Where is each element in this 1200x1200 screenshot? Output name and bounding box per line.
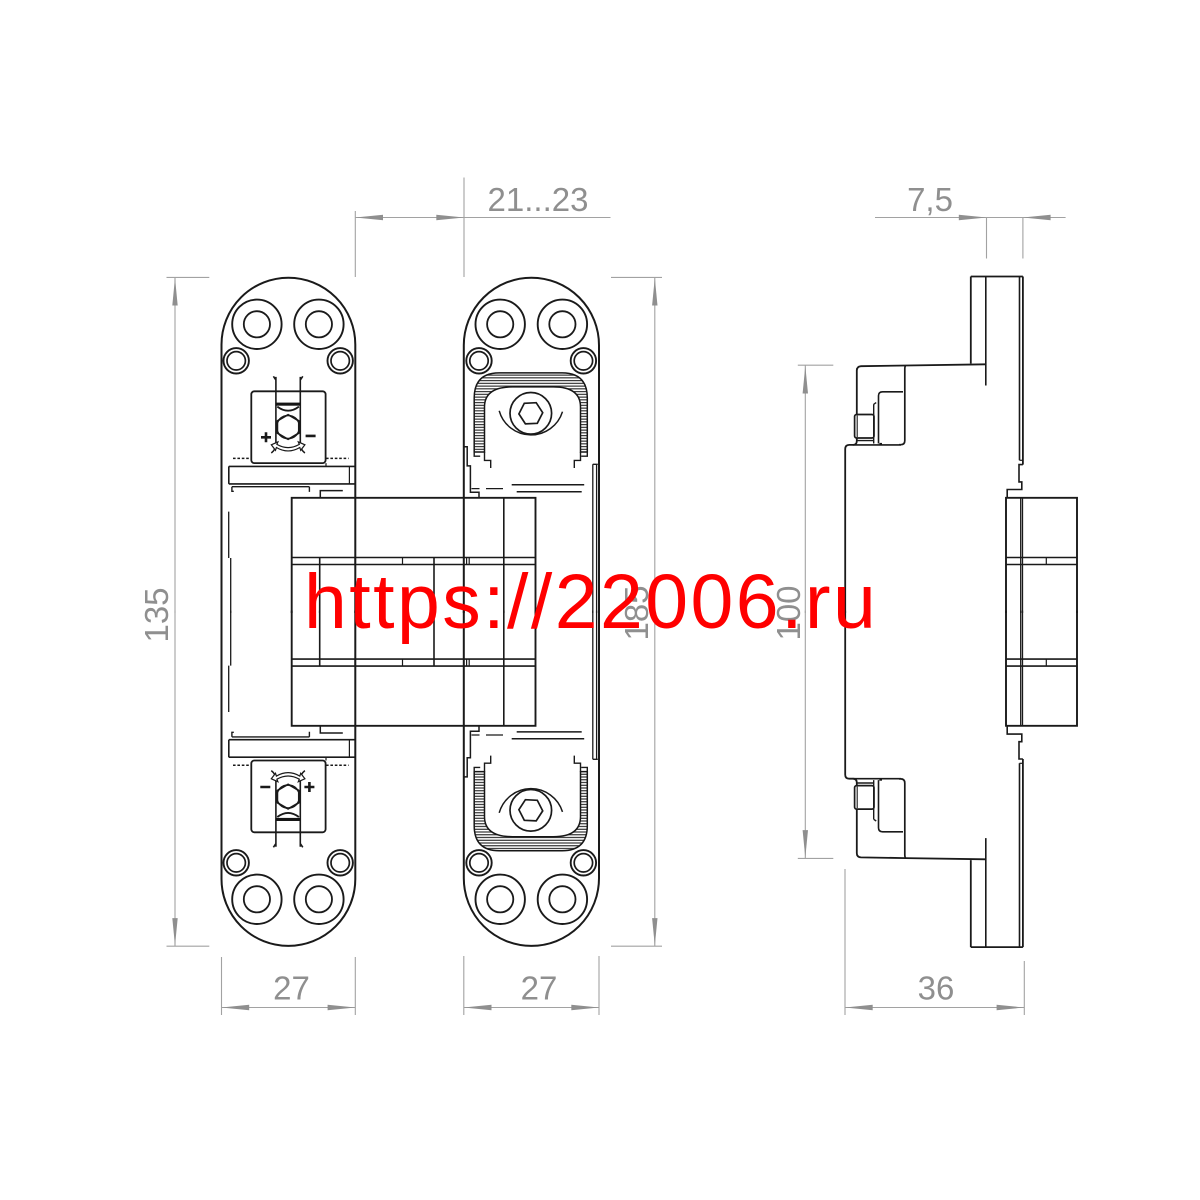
svg-text:7,5: 7,5 (907, 181, 953, 218)
svg-text:21...23: 21...23 (488, 181, 589, 218)
svg-text:27: 27 (521, 970, 558, 1007)
svg-text:https://22006.ru: https://22006.ru (304, 559, 878, 645)
svg-text:36: 36 (918, 970, 955, 1007)
svg-text:27: 27 (273, 970, 310, 1007)
svg-text:135: 135 (138, 587, 175, 642)
